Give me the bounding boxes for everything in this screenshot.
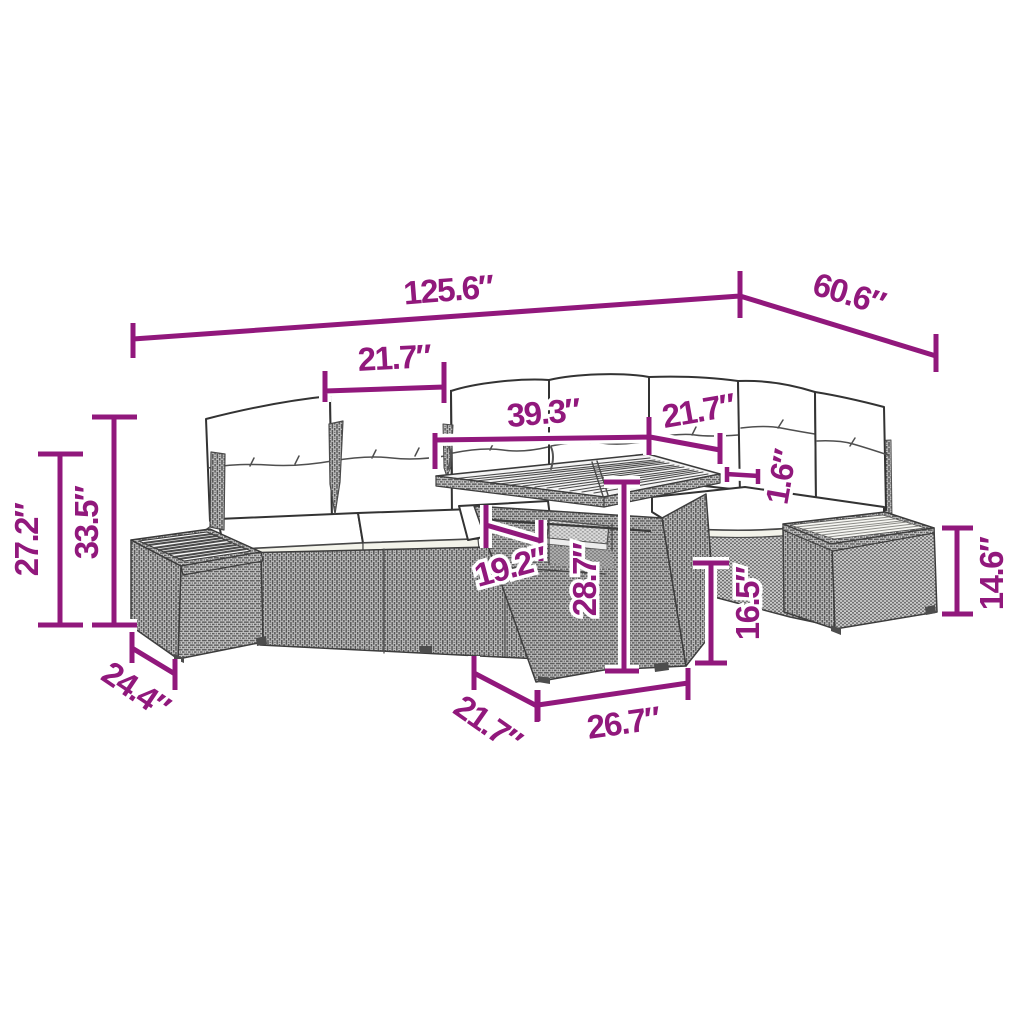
svg-text:39.3″: 39.3″: [505, 391, 582, 434]
svg-text:27.2″: 27.2″: [8, 502, 45, 576]
svg-text:16.5″: 16.5″: [729, 566, 766, 640]
svg-text:125.6″: 125.6″: [402, 267, 496, 311]
svg-text:33.5″: 33.5″: [68, 485, 105, 559]
svg-text:14.6″: 14.6″: [973, 536, 1010, 610]
svg-text:28.7″: 28.7″: [566, 542, 603, 616]
svg-text:21.7″: 21.7″: [357, 337, 433, 378]
